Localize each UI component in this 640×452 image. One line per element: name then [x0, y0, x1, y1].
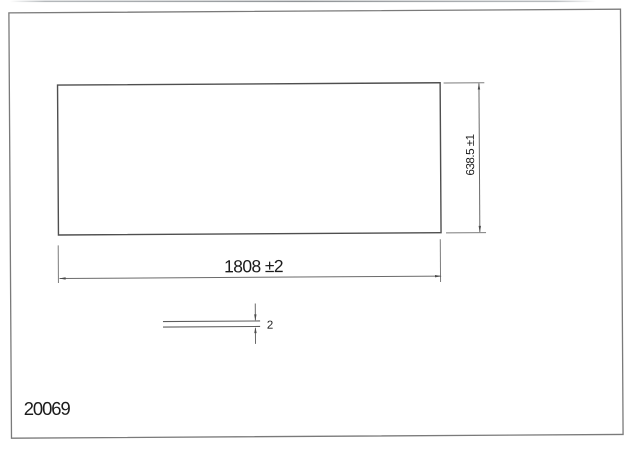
svg-text:20069: 20069: [24, 398, 71, 419]
svg-text:1808 ±2: 1808 ±2: [224, 256, 283, 276]
svg-text:638.5 ±1: 638.5 ±1: [464, 134, 477, 175]
svg-text:2: 2: [267, 320, 273, 332]
